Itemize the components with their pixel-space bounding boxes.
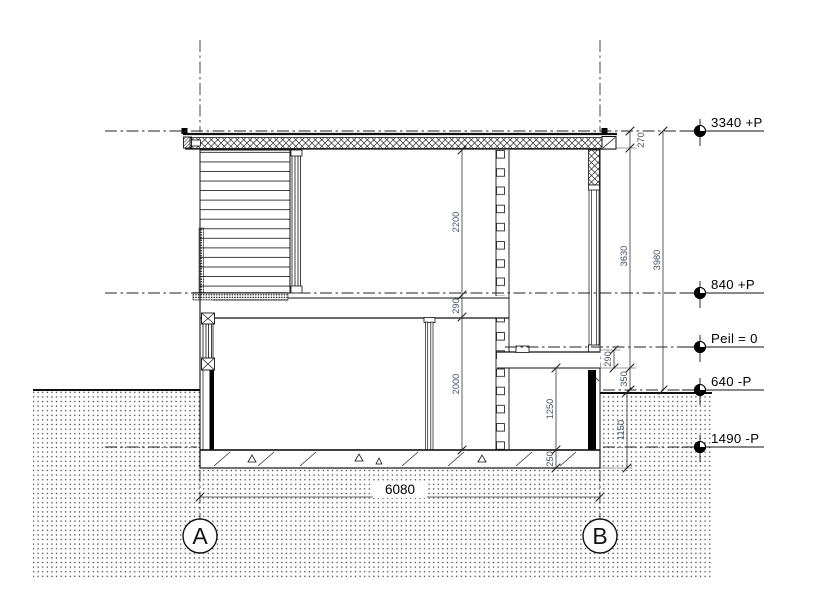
level-label-640: 640 -P [711, 374, 752, 389]
right-window-sill [589, 345, 601, 352]
roof-insulation-hatch [190, 138, 602, 149]
right-window-inner-frame [589, 185, 592, 345]
datum-840: 840 +P [682, 277, 764, 308]
left-window-frame-inner [209, 324, 212, 358]
grid-label-b: B [592, 523, 607, 549]
datum-symbol [695, 385, 706, 396]
dim-right-zone-height: 3630 [619, 246, 629, 267]
fascia-left-timber [184, 137, 192, 148]
datum-3340: 3340 +P [682, 115, 764, 146]
terrace-window-frame-outer [292, 150, 295, 293]
dim-upper-floor-thickness: 290 [451, 298, 461, 314]
datum-symbol [695, 288, 706, 299]
right-slab-mask [497, 352, 600, 368]
dim-right-total-height: 3980 [652, 250, 662, 271]
dim-right-slab-thickness: 290 [603, 351, 613, 367]
dim-upper-room-height: 2200 [451, 212, 461, 233]
upper-left-slat-wall [199, 150, 302, 293]
datum-symbol [695, 126, 706, 137]
level-label-1490: 1490 -P [711, 431, 759, 446]
architectural-section-page: 3340 +P 840 +P Peil = 0 640 -P 1490 -P [0, 0, 838, 612]
terrace-window-head [291, 150, 302, 156]
dim-roof-thickness: 270 [636, 132, 646, 148]
datum-symbol [695, 342, 706, 353]
level-label-peil0: Peil = 0 [711, 331, 758, 346]
bottom-slab-body [200, 450, 600, 468]
dim-bottom-slab-thickness: 250 [545, 451, 555, 467]
left-window-frame-outer [203, 324, 206, 358]
right-wall-insulated-panel [589, 150, 600, 185]
grid-label-a: A [192, 523, 208, 549]
door-leaf-line-1 [426, 322, 428, 450]
terrace-finish-band [193, 293, 288, 301]
door-leaf-line-2 [431, 322, 433, 450]
dim-pit-height: 1250 [545, 399, 555, 420]
slat-panel [200, 150, 290, 293]
fascia-left-board [192, 140, 201, 146]
right-window-outer-frame [597, 185, 600, 345]
right-window-head [589, 185, 600, 190]
level-label-840: 840 +P [711, 277, 755, 292]
datum-symbol [695, 442, 706, 453]
left-basement-wall [210, 370, 215, 450]
dim-lower-room-height: 2000 [451, 374, 461, 395]
dim-slab-to-ground: 350 [619, 371, 629, 387]
bottom-slab [200, 450, 600, 468]
screen-post-section [199, 228, 204, 293]
level-label-3340: 3340 +P [711, 115, 763, 130]
pit-wall [588, 370, 596, 450]
dim-overall-width: 6080 [385, 482, 415, 497]
datum-peil0: Peil = 0 [682, 331, 764, 362]
terrace-window-frame-inner [298, 150, 301, 293]
dim-ground-to-foundation: 1150 [616, 420, 626, 440]
section-drawing: 3340 +P 840 +P Peil = 0 640 -P 1490 -P [0, 0, 838, 612]
terrace-window-sill [291, 286, 302, 293]
